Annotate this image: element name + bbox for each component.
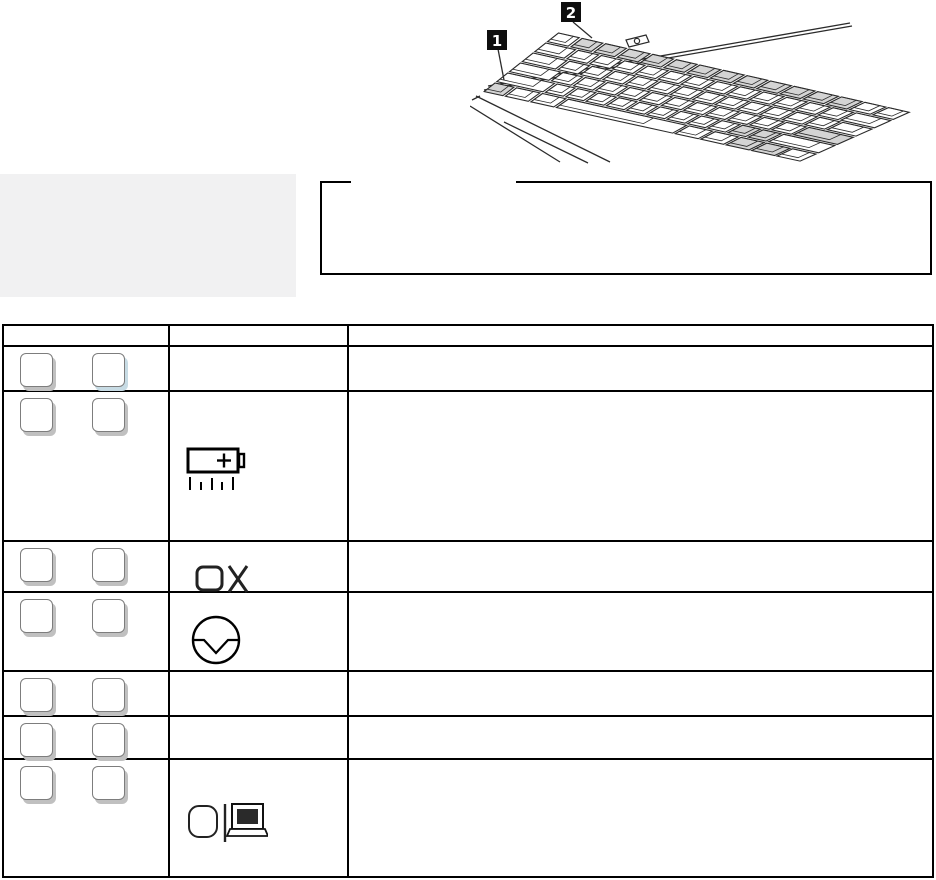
table-row-7-symbol [170,760,349,876]
note-box [320,181,932,275]
header-description [349,326,932,347]
table-row-3-description [349,542,932,593]
display-switch-icon [186,802,268,844]
callout-2-label: 2 [566,4,576,22]
battery-gauge-icon [186,446,246,492]
table-row-4-description [349,593,932,672]
table-row-7-description [349,760,932,876]
modifier-key-icon [20,599,53,633]
table-row-2-keys [4,392,170,542]
table-row-2-description [349,392,932,542]
table-row-4-keys [4,593,170,672]
table-row-5-keys [4,672,170,717]
keyboard-drawing: 1 2 [470,0,936,166]
key-combination [20,548,160,584]
function-key-icon [92,548,125,582]
key-combination [20,353,160,389]
key-combination [20,678,160,714]
keyboard-illustration: 1 2 [470,0,936,166]
table-row-1-description [349,347,932,392]
key-combination [20,766,160,802]
standby-icon [190,614,242,666]
table-row-5-description [349,672,932,717]
note-box-title-gap [351,181,516,183]
function-key-icon [92,723,125,757]
sidebar-heading-block [0,174,296,297]
table-row-1-keys [4,347,170,392]
key-grid [484,33,909,161]
table-row-6-description [349,717,932,760]
header-symbol [170,326,349,347]
modifier-key-icon [20,548,53,582]
function-key-icon [92,398,125,432]
function-key-icon [92,678,125,712]
table-row-6-symbol [170,717,349,760]
table-row-7-keys [4,760,170,876]
modifier-key-icon [20,678,53,712]
callout-2: 2 [561,2,592,38]
callout-1: 1 [487,30,507,80]
modifier-key-icon [20,398,53,432]
table-row-1-symbol [170,347,349,392]
function-key-icon [92,599,125,633]
power-button-icon [626,35,649,47]
table-row-5-symbol [170,672,349,717]
modifier-key-icon [20,353,53,387]
header-key-combination [4,326,170,347]
table-row-3-keys [4,542,170,593]
modifier-key-icon [20,766,53,800]
key-combination [20,723,160,759]
function-key-icon [92,766,125,800]
fn-key-table [2,324,934,878]
lcd-off-icon [195,563,251,595]
manual-page: 1 2 [0,0,936,880]
callout-1-label: 1 [492,32,502,50]
table-row-6-keys [4,717,170,760]
key-combination [20,398,160,434]
modifier-key-icon [20,723,53,757]
table-row-4-symbol [170,593,349,672]
table-row-3-symbol [170,542,349,593]
table-row-2-symbol [170,392,349,542]
key-combination [20,599,160,635]
function-key-icon [92,353,125,387]
